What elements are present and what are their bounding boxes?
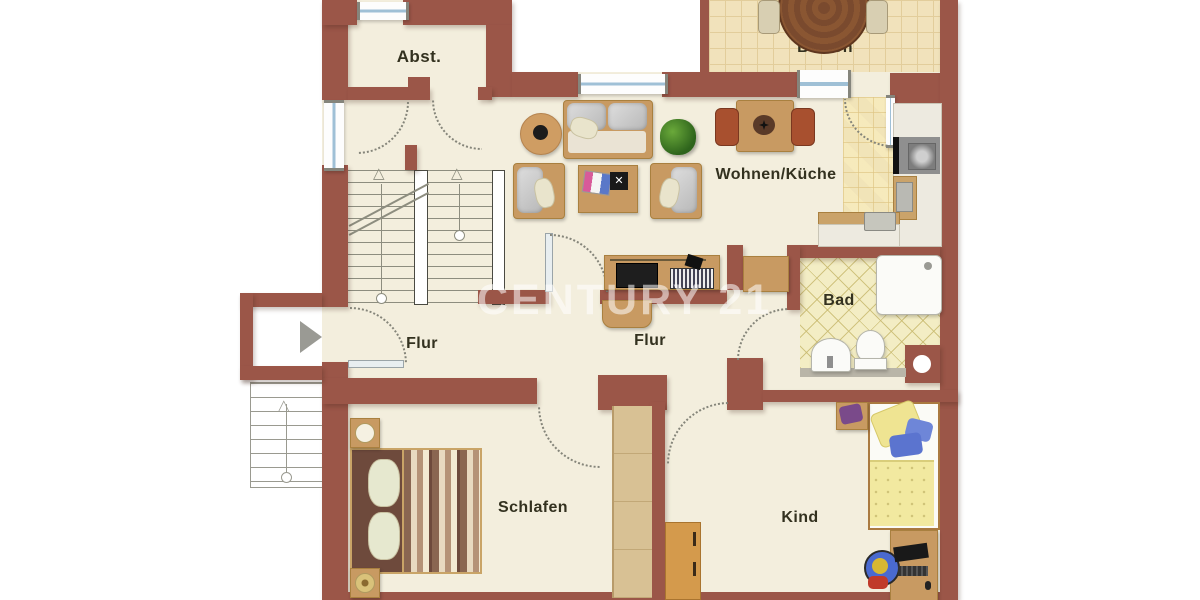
wall	[240, 366, 322, 380]
wall	[650, 402, 665, 600]
window	[324, 100, 344, 171]
outside-gap-top	[512, 0, 702, 72]
kid-bed-duvet	[870, 460, 934, 526]
double-bed-duvet	[402, 448, 482, 574]
game-box: ✕	[610, 172, 628, 190]
wall	[940, 0, 958, 600]
wall	[890, 73, 940, 103]
wall	[405, 145, 417, 170]
wall	[408, 77, 430, 87]
balcony-chair	[866, 0, 888, 34]
dining-chair	[791, 108, 815, 146]
wall	[727, 358, 763, 410]
room-label-flur-left: Flur	[406, 335, 438, 353]
wall	[512, 72, 578, 97]
wall	[322, 378, 537, 404]
plant	[660, 119, 696, 155]
wall	[322, 0, 357, 25]
kettle	[533, 125, 548, 140]
nightstand-lamp	[355, 423, 375, 443]
wall	[348, 87, 430, 100]
stair-start-circle	[281, 472, 292, 483]
kid-wardrobe-slit	[693, 532, 696, 546]
kitchen-counter-right	[893, 103, 942, 247]
bed-pillow	[368, 459, 400, 507]
room-label-abst: Abst.	[397, 47, 442, 67]
room-label-bad: Bad	[823, 292, 854, 310]
kid-chair-back	[868, 576, 888, 589]
kid-keyboard	[898, 566, 928, 576]
stair-arrow-up-icon: △	[278, 398, 290, 413]
kitchen-sink2	[864, 212, 896, 231]
room-label-wohnen: Wohnen/Küche	[716, 166, 837, 184]
stairs-run-line-left	[381, 184, 382, 296]
balcony-window	[797, 70, 851, 98]
shower	[876, 255, 942, 315]
century21-watermark: CENTURY 21	[477, 276, 772, 325]
wall	[478, 87, 492, 100]
toilet-tank	[854, 358, 887, 370]
floorplan-canvas: △ △ △ ✕	[0, 0, 1200, 600]
kid-blanket-blue	[889, 432, 924, 458]
shower-head	[924, 262, 932, 270]
stairs-run-line-right	[459, 184, 460, 234]
window	[357, 2, 409, 20]
bath-sink-faucet	[827, 356, 833, 368]
nightstand-lamp	[355, 573, 375, 593]
wall	[322, 165, 348, 307]
sofa-cushion	[608, 103, 647, 130]
balcony-chair	[758, 0, 780, 34]
room-label-kind: Kind	[781, 509, 818, 527]
entrance-arrow-icon	[300, 321, 322, 353]
exterior-stairs-run-line	[286, 404, 287, 478]
room-label-flur-mid: Flur	[634, 332, 666, 350]
magazine	[582, 170, 613, 196]
window	[578, 74, 668, 94]
room-label-schlafen: Schlafen	[498, 499, 568, 517]
stair-arrow-up-icon: △	[373, 166, 385, 181]
balcony-rail	[700, 0, 709, 72]
stair-start-circle	[376, 293, 387, 304]
stair-arrow-up-icon: △	[451, 166, 463, 181]
stair-start-circle	[454, 230, 465, 241]
kid-chair-seat	[872, 558, 888, 574]
wall	[763, 390, 958, 402]
kid-mouse	[925, 581, 931, 590]
kid-wardrobe-slit	[693, 562, 696, 576]
wall	[403, 0, 512, 25]
bed-pillow	[368, 512, 400, 560]
wardrobe	[612, 406, 652, 598]
kitchen-sink-basin	[896, 182, 913, 212]
wall-pipe	[913, 355, 931, 373]
stove-ring	[908, 143, 936, 170]
dining-chair	[715, 108, 739, 146]
wall	[662, 72, 797, 97]
